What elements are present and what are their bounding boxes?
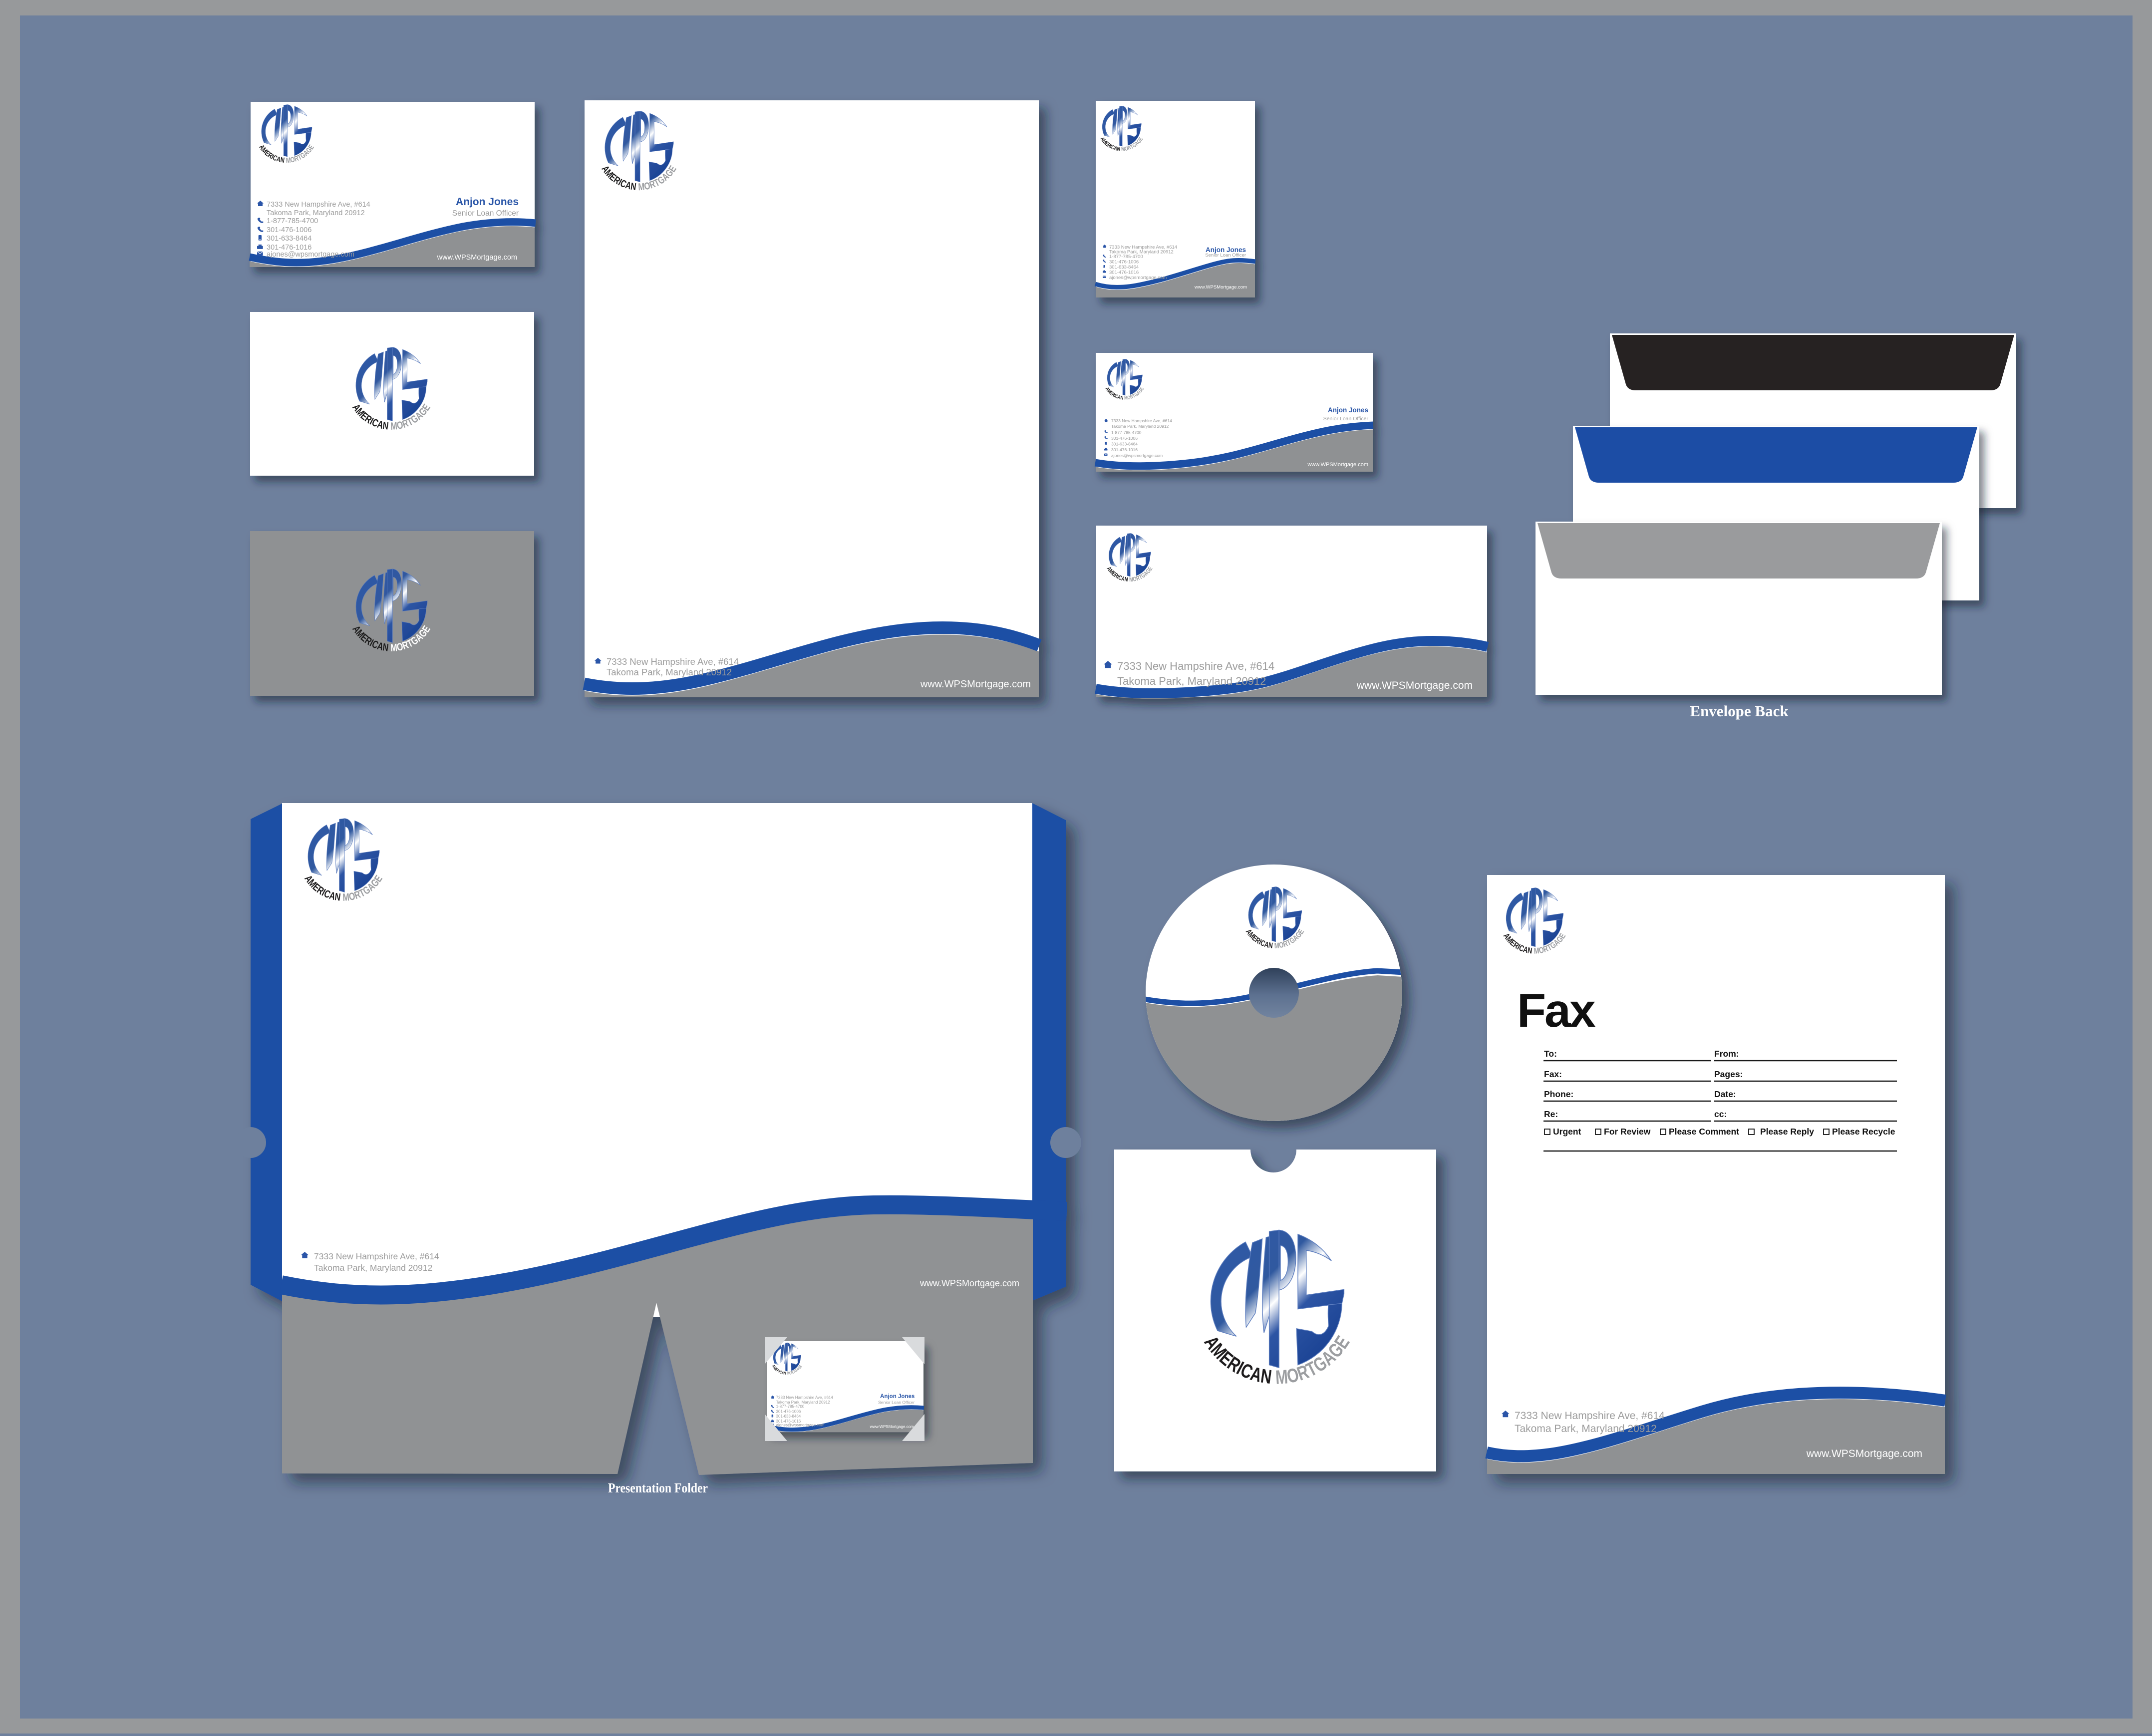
svg-text:Envelope Back: Envelope Back (1690, 702, 1789, 720)
svg-text:Takoma Park, Maryland 20912: Takoma Park, Maryland 20912 (314, 1263, 432, 1273)
svg-text:Presentation Folder: Presentation Folder (608, 1480, 708, 1495)
svg-text:7333 New Hampshire Ave, #614: 7333 New Hampshire Ave, #614 (314, 1251, 439, 1261)
svg-text:Takoma Park, Maryland 20912: Takoma Park, Maryland 20912 (1117, 675, 1266, 687)
svg-text:301-476-1006: 301-476-1006 (1109, 260, 1139, 265)
svg-text:From:: From: (1714, 1049, 1739, 1059)
svg-text:www.WPSMortgage.com: www.WPSMortgage.com (1356, 680, 1473, 691)
svg-text:301-633-8464: 301-633-8464 (1111, 442, 1138, 447)
svg-text:301-476-1006: 301-476-1006 (1111, 436, 1138, 441)
svg-text:ajones@wpsmortgage.com: ajones@wpsmortgage.com (1109, 275, 1167, 281)
svg-text:Takoma Park, Maryland 20912: Takoma Park, Maryland 20912 (1111, 424, 1169, 429)
svg-text:cc:: cc: (1714, 1109, 1727, 1119)
svg-text:Senior Loan Officer: Senior Loan Officer (1205, 253, 1246, 258)
svg-text:7333 New Hampshire Ave, #614: 7333 New Hampshire Ave, #614 (1111, 418, 1172, 423)
svg-text:301-476-1016: 301-476-1016 (1109, 270, 1139, 276)
svg-text:Please Reply: Please Reply (1760, 1127, 1814, 1137)
svg-text:Takoma Park, Maryland 20912: Takoma Park, Maryland 20912 (607, 667, 732, 677)
svg-text:7333 New Hampshire Ave, #614: 7333 New Hampshire Ave, #614 (1515, 1410, 1665, 1422)
svg-text:To:: To: (1544, 1049, 1557, 1059)
svg-text:301-476-1016: 301-476-1016 (1111, 447, 1138, 452)
svg-text:www.WPSMortgage.com: www.WPSMortgage.com (1307, 462, 1368, 468)
svg-text:For Review: For Review (1604, 1127, 1651, 1137)
svg-text:Re:: Re: (1544, 1109, 1558, 1119)
svg-text:www.WPSMortgage.com: www.WPSMortgage.com (920, 679, 1031, 690)
svg-text:Please Comment: Please Comment (1669, 1127, 1739, 1137)
svg-text:Date:: Date: (1714, 1089, 1736, 1099)
svg-text:7333 New Hampshire Ave, #614: 7333 New Hampshire Ave, #614 (607, 656, 739, 667)
svg-text:www.WPSMortgage.com: www.WPSMortgage.com (1806, 1448, 1922, 1459)
svg-text:www.WPSMortgage.com: www.WPSMortgage.com (1194, 285, 1247, 290)
svg-text:Urgent: Urgent (1553, 1127, 1581, 1137)
svg-text:Fax: Fax (1517, 984, 1596, 1037)
svg-text:www.WPSMortgage.com: www.WPSMortgage.com (920, 1278, 1019, 1288)
svg-text:Pages:: Pages: (1714, 1069, 1743, 1079)
svg-text:301-633-8464: 301-633-8464 (1109, 265, 1139, 270)
svg-text:ajones@wpsmortgage.com: ajones@wpsmortgage.com (1111, 453, 1163, 458)
svg-text:Senior Loan Officer: Senior Loan Officer (1323, 416, 1369, 422)
svg-text:1-877-785-4700: 1-877-785-4700 (1111, 430, 1142, 435)
svg-text:Anjon Jones: Anjon Jones (1328, 406, 1368, 414)
svg-text:1-877-785-4700: 1-877-785-4700 (1109, 254, 1143, 260)
svg-text:Please Recycle: Please Recycle (1832, 1127, 1895, 1137)
svg-text:Phone:: Phone: (1544, 1089, 1573, 1099)
svg-text:Fax:: Fax: (1544, 1069, 1562, 1079)
svg-text:7333 New Hampshire Ave, #614: 7333 New Hampshire Ave, #614 (1117, 660, 1274, 672)
svg-text:Takoma Park, Maryland 20912: Takoma Park, Maryland 20912 (1515, 1423, 1657, 1435)
